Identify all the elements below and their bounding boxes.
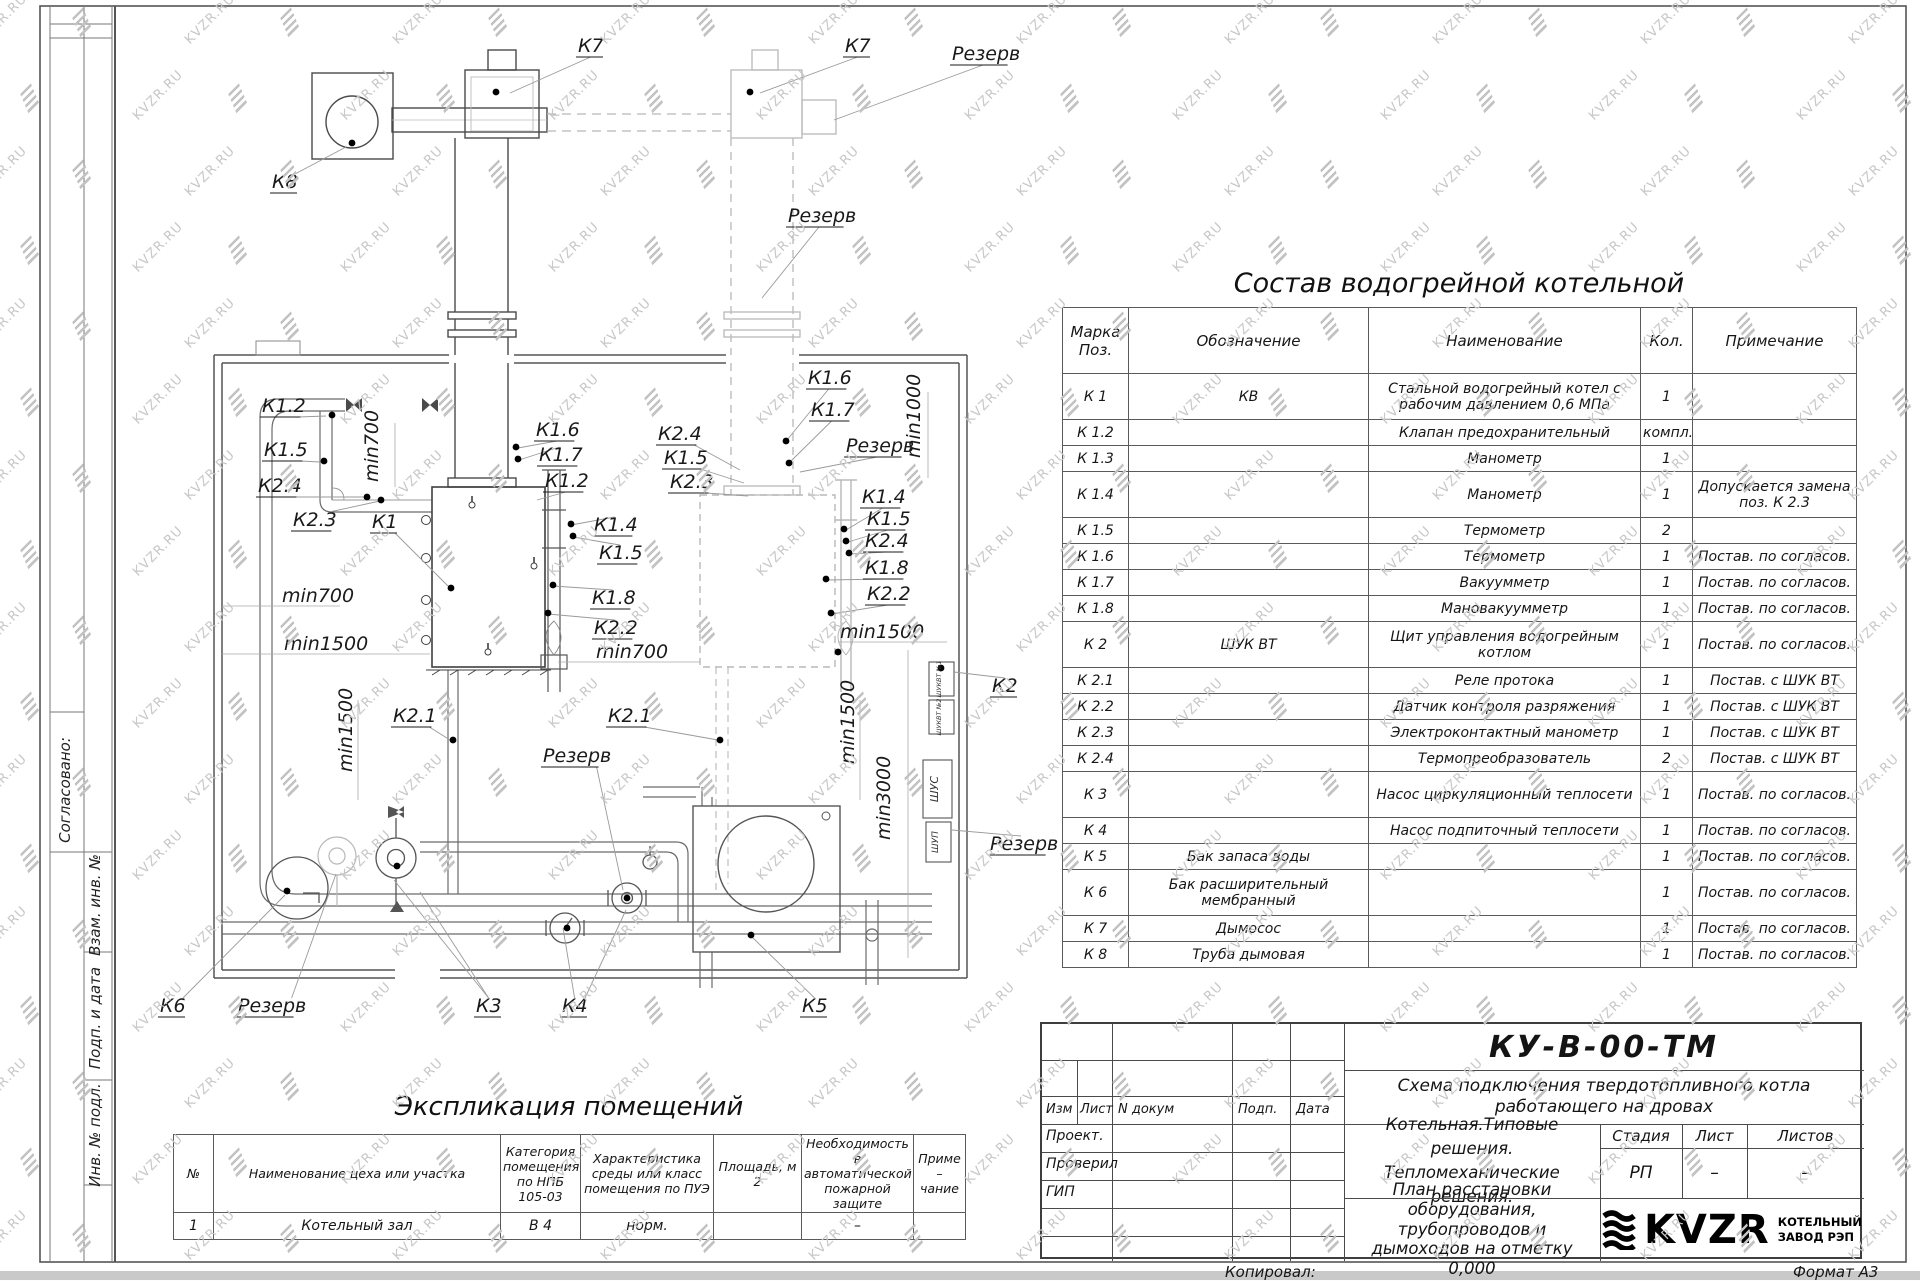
explication-table-section: Экспликация помещений №Наименование цеха…: [173, 1092, 965, 1240]
drawing-label: К2.1: [608, 705, 652, 727]
stamp-column-label: Подп. и дата: [86, 967, 104, 1069]
drawing-label: min3000: [873, 756, 895, 840]
c-note: Постав. по согласов.: [1693, 916, 1857, 942]
c-mark: К 3: [1063, 772, 1129, 818]
drawing-label: К1.5: [664, 447, 708, 469]
c-name: Насос циркуляционный теплосети: [1369, 772, 1641, 818]
drawing-label: К1.6: [808, 367, 852, 389]
table-row: К 3Насос циркуляционный теплосети1Постав…: [1063, 772, 1857, 818]
drawing-label: К6: [160, 995, 186, 1017]
c-qty: 1: [1641, 668, 1693, 694]
table-row: К 7Дымосос1Постав. по согласов.: [1063, 916, 1857, 942]
c-desig: [1129, 694, 1369, 720]
document-number: КУ-В-00-ТМ: [1344, 1024, 1864, 1070]
c-desig: Дымосос: [1129, 916, 1369, 942]
table-row: К 1КВСтальной водогрейный котел с рабочи…: [1063, 374, 1857, 420]
composition-table-title: Состав водогрейной котельной: [1062, 268, 1856, 299]
drawing-label: К2.2: [594, 617, 638, 639]
c-mark: К 4: [1063, 818, 1129, 844]
table-row: К 2ШУК ВТЩит управления водогрейным котл…: [1063, 622, 1857, 668]
c-mark: К 2.1: [1063, 668, 1129, 694]
c-mark: К 8: [1063, 942, 1129, 968]
c-note: Постав. по согласов.: [1693, 844, 1857, 870]
c-name: Манометр: [1369, 446, 1641, 472]
drawing-label: min700: [596, 641, 668, 663]
drawing-label: К1.6: [536, 419, 580, 441]
logo-caption: КОТЕЛЬНЫЙ ЗАВОД РЭП: [1778, 1215, 1862, 1244]
kvzr-logo-icon: [1602, 1210, 1636, 1250]
drawing-label: К1.5: [867, 508, 911, 530]
expl-cell: В 4: [501, 1213, 581, 1240]
drawing-label: К2.3: [293, 509, 337, 531]
company-logo: KVZR КОТЕЛЬНЫЙ ЗАВОД РЭП: [1600, 1198, 1864, 1261]
c-note: [1693, 374, 1857, 420]
composition-table-section: Состав водогрейной котельной Марка Поз. …: [1062, 268, 1856, 968]
c-note: Постав. по согласов.: [1693, 544, 1857, 570]
c-name: Электроконтактный манометр: [1369, 720, 1641, 746]
stamp-column-label: Согласовано:: [56, 737, 74, 843]
c-name: Термопреобразователь: [1369, 746, 1641, 772]
drawing-label: min1500: [284, 633, 368, 655]
expl-header-cell: Наименование цеха или участка: [214, 1135, 501, 1213]
expl-cell: 1: [174, 1213, 214, 1240]
table-row: К 2.4Термопреобразователь2Постав. с ШУК …: [1063, 746, 1857, 772]
expl-header-cell: Характеристика среды или класс помещения…: [581, 1135, 714, 1213]
c-name: Клапан предохранительный: [1369, 420, 1641, 446]
drawing-label: К1.2: [262, 395, 306, 417]
c-note: Постав. с ШУК ВТ: [1693, 668, 1857, 694]
drawing-label: К2.4: [865, 530, 909, 552]
c-desig: [1129, 544, 1369, 570]
drawing-label: К1.4: [862, 486, 906, 508]
c-name: Вакуумметр: [1369, 570, 1641, 596]
logo-word: KVZR: [1644, 1207, 1770, 1253]
c-qty: 1: [1641, 570, 1693, 596]
water-tank-k5: [693, 806, 840, 952]
drawing-label: Резерв: [952, 43, 1020, 65]
c-mark: К 6: [1063, 870, 1129, 916]
c-desig: [1129, 446, 1369, 472]
table-row: К 2.1Реле протока1Постав. с ШУК ВТ: [1063, 668, 1857, 694]
c-note: Постав. по согласов.: [1693, 818, 1857, 844]
expl-header-cell: Приме – чание: [914, 1135, 966, 1213]
drawing-sheet: К7К7РезервК8РезервК1.2К1.5К2.4К2.3К1min7…: [0, 0, 1920, 1280]
expl-cell: Котельный зал: [214, 1213, 501, 1240]
drawing-label: К2.3: [670, 471, 714, 493]
c-note: Постав. с ШУК ВТ: [1693, 746, 1857, 772]
c-name: [1369, 844, 1641, 870]
c-qty: 2: [1641, 518, 1693, 544]
c-name: Термометр: [1369, 544, 1641, 570]
table-row: К 1.6Термометр1Постав. по согласов.: [1063, 544, 1857, 570]
c-desig: Бак расширительный мембранный: [1129, 870, 1369, 916]
c-qty: 2: [1641, 746, 1693, 772]
c-name: Реле протока: [1369, 668, 1641, 694]
c-qty: 1: [1641, 446, 1693, 472]
c-qty: 1: [1641, 472, 1693, 518]
left-stamp-column: [50, 6, 112, 1262]
c-qty: 1: [1641, 870, 1693, 916]
reserve-boiler: [700, 480, 857, 692]
table-row: К 2.3Электроконтактный манометр1Постав. …: [1063, 720, 1857, 746]
c-mark: К 7: [1063, 916, 1129, 942]
role-checked: Проверил: [1046, 1156, 1118, 1172]
title-block: Изм Лист N докум Подп. Дата Проект. Пров…: [1040, 1022, 1862, 1259]
c-note: [1693, 446, 1857, 472]
stage-header: Стадия: [1600, 1124, 1682, 1148]
drawing-label: К1.4: [594, 514, 638, 536]
c-mark: К 2.2: [1063, 694, 1129, 720]
c-name: Датчик контроля разряжения: [1369, 694, 1641, 720]
c-qty: 1: [1641, 596, 1693, 622]
change-col-data: Дата: [1296, 1102, 1330, 1117]
cabinet-label: ШУКВТ №1: [935, 661, 943, 698]
c-desig: [1129, 596, 1369, 622]
drawing-label: min700: [361, 410, 383, 482]
chimney-k8: [312, 73, 547, 159]
sheets-header: Листов: [1747, 1124, 1864, 1148]
copied-label: Копировал:: [1225, 1263, 1316, 1281]
c-mark: К 1.6: [1063, 544, 1129, 570]
c-name: Мановакуумметр: [1369, 596, 1641, 622]
drawing-label: К2.1: [393, 705, 437, 727]
expl-header-cell: №: [174, 1135, 214, 1213]
c-mark: К 5: [1063, 844, 1129, 870]
expl-cell: –: [802, 1213, 914, 1240]
role-project: Проект.: [1046, 1128, 1104, 1144]
drawing-label: К1.5: [264, 439, 308, 461]
drawing-label: К2: [992, 675, 1018, 697]
drawing-label: К3: [476, 995, 502, 1017]
table-row: К 8Труба дымовая1Постав. по согласов.: [1063, 942, 1857, 968]
drawing-label: К1.8: [592, 587, 636, 609]
expl-header-cell: Площадь, м 2: [714, 1135, 802, 1213]
c-desig: [1129, 668, 1369, 694]
cabinet-label: ШУКВТ №2: [935, 699, 943, 736]
drawing-label: К4: [562, 995, 588, 1017]
cabinet-label: ШУП: [931, 831, 941, 853]
c-desig: КВ: [1129, 374, 1369, 420]
c-note: Постав. по согласов.: [1693, 570, 1857, 596]
c-mark: К 1.4: [1063, 472, 1129, 518]
stamp-column-label: Взам. инв. №: [86, 854, 104, 956]
drawing-label: К1.5: [599, 542, 643, 564]
c-desig: [1129, 472, 1369, 518]
c-name: Насос подпиточный теплосети: [1369, 818, 1641, 844]
smoke-exhauster-k7: [448, 50, 539, 487]
table-row: К 4Насос подпиточный теплосети1Постав. п…: [1063, 818, 1857, 844]
c-note: [1693, 420, 1857, 446]
c-qty: 1: [1641, 622, 1693, 668]
expl-header-cell: Категория помещения по НПБ 105-03: [501, 1135, 581, 1213]
drawing-label: К1.8: [865, 557, 909, 579]
table-row: К 1.5Термометр2: [1063, 518, 1857, 544]
expl-cell: [914, 1213, 966, 1240]
c-desig: [1129, 518, 1369, 544]
c-desig: [1129, 772, 1369, 818]
format-label: Формат А3: [1793, 1263, 1878, 1281]
c-qty: 1: [1641, 772, 1693, 818]
c-mark: К 1.3: [1063, 446, 1129, 472]
sheet-value: –: [1682, 1148, 1747, 1198]
drawing-label: Резерв: [238, 995, 306, 1017]
drawing-label: Резерв: [543, 745, 611, 767]
c-qty: 1: [1641, 844, 1693, 870]
expl-header-cell: Необходимость в автоматической пожарной …: [802, 1135, 914, 1213]
c-mark: К 1.2: [1063, 420, 1129, 446]
c-mark: К 1: [1063, 374, 1129, 420]
drawing-label: К1.2: [545, 470, 589, 492]
c-qty: компл.: [1641, 420, 1693, 446]
change-col-list: Лист: [1080, 1102, 1113, 1117]
drawing-label: min1000: [903, 374, 925, 458]
c-note: Постав. по согласов.: [1693, 596, 1857, 622]
c-desig: [1129, 818, 1369, 844]
c-mark: К 1.8: [1063, 596, 1129, 622]
c-desig: ШУК ВТ: [1129, 622, 1369, 668]
expl-cell: [714, 1213, 802, 1240]
valve-symbols: [346, 398, 438, 412]
c-desig: [1129, 746, 1369, 772]
c-mark: К 2.3: [1063, 720, 1129, 746]
c-desig: [1129, 420, 1369, 446]
c-qty: 1: [1641, 916, 1693, 942]
drawing-label: min1500: [840, 621, 924, 643]
c-mark: К 1.7: [1063, 570, 1129, 596]
table-row: К 1.3Манометр1: [1063, 446, 1857, 472]
sheets-value: –: [1747, 1148, 1864, 1198]
c-desig: Труба дымовая: [1129, 942, 1369, 968]
expl-cell: норм.: [581, 1213, 714, 1240]
drawing-label: Резерв: [788, 205, 856, 227]
stamp-column-label: Инв. № подл.: [86, 1083, 104, 1186]
drawing-label: К5: [802, 995, 828, 1017]
c-qty: 1: [1641, 694, 1693, 720]
drawing-label: К1: [372, 511, 398, 533]
c-name: Манометр: [1369, 472, 1641, 518]
table-row: К 1.2Клапан предохранительныйкомпл.: [1063, 420, 1857, 446]
change-col-ndoc: N докум: [1118, 1102, 1174, 1117]
c-name: Стальной водогрейный котел с рабочим дав…: [1369, 374, 1641, 420]
sheet-name: План расстановки оборудования, трубопров…: [1344, 1198, 1600, 1261]
table-row: 1Котельный залВ 4норм.–: [174, 1213, 966, 1240]
composition-table: Марка Поз. Обозначение Наименование Кол.…: [1062, 307, 1857, 968]
change-col-podp: Подп.: [1238, 1102, 1277, 1117]
composition-header-row: Марка Поз. Обозначение Наименование Кол.…: [1063, 308, 1857, 374]
c-note: Постав. с ШУК ВТ: [1693, 694, 1857, 720]
table-row: К 1.8Мановакуумметр1Постав. по согласов.: [1063, 596, 1857, 622]
drawing-label: К7: [845, 35, 871, 57]
boiler-k1: [422, 487, 552, 675]
drawing-label: К7: [578, 35, 604, 57]
c-note: Допускается замена поз. К 2.3: [1693, 472, 1857, 518]
explication-table: №Наименование цеха или участкаКатегория …: [173, 1134, 966, 1240]
sheet-header: Лист: [1682, 1124, 1747, 1148]
expansion-tank-k6: [266, 857, 328, 919]
c-name: Щит управления водогрейным котлом: [1369, 622, 1641, 668]
change-col-izm: Изм: [1046, 1102, 1072, 1117]
c-desig: [1129, 570, 1369, 596]
role-gip: ГИП: [1046, 1184, 1075, 1200]
col-note: Примечание: [1693, 308, 1857, 374]
c-desig: Бак запаса воды: [1129, 844, 1369, 870]
c-mark: К 1.5: [1063, 518, 1129, 544]
col-mark: Марка Поз.: [1063, 308, 1129, 374]
c-note: [1693, 518, 1857, 544]
c-note: Постав. по согласов.: [1693, 870, 1857, 916]
drawing-label: К2.4: [658, 423, 702, 445]
c-name: Термометр: [1369, 518, 1641, 544]
c-note: Постав. с ШУК ВТ: [1693, 720, 1857, 746]
c-qty: 1: [1641, 942, 1693, 968]
c-mark: К 2.4: [1063, 746, 1129, 772]
c-qty: 1: [1641, 374, 1693, 420]
c-name: [1369, 942, 1641, 968]
c-qty: 1: [1641, 818, 1693, 844]
drawing-label: К1.7: [539, 444, 583, 466]
c-note: Постав. по согласов.: [1693, 942, 1857, 968]
table-row: К 6Бак расширительный мембранный1Постав.…: [1063, 870, 1857, 916]
c-desig: [1129, 720, 1369, 746]
c-name: [1369, 870, 1641, 916]
c-qty: 1: [1641, 544, 1693, 570]
table-row: К 1.7Вакуумметр1Постав. по согласов.: [1063, 570, 1857, 596]
col-designation: Обозначение: [1129, 308, 1369, 374]
drawing-label: min1500: [335, 688, 357, 772]
col-name: Наименование: [1369, 308, 1641, 374]
table-row: К 1.4Манометр1Допускается замена поз. К …: [1063, 472, 1857, 518]
table-row: К 2.2Датчик контроля разряжения1Постав. …: [1063, 694, 1857, 720]
drawing-label: Резерв: [990, 833, 1058, 855]
drawing-label: К2.4: [258, 475, 302, 497]
explication-header-row: №Наименование цеха или участкаКатегория …: [174, 1135, 966, 1213]
drawing-label: min1500: [837, 680, 859, 764]
table-row: К 5Бак запаса воды1Постав. по согласов.: [1063, 844, 1857, 870]
c-note: Постав. по согласов.: [1693, 622, 1857, 668]
drawing-label: К8: [272, 171, 298, 193]
drawing-label: К1.7: [811, 399, 855, 421]
stage-value: РП: [1600, 1148, 1682, 1198]
explication-table-title: Экспликация помещений: [173, 1092, 965, 1122]
circulation-pump-k3: [376, 806, 416, 912]
c-note: Постав. по согласов.: [1693, 772, 1857, 818]
c-mark: К 2: [1063, 622, 1129, 668]
drawing-label: min700: [282, 585, 354, 607]
c-qty: 1: [1641, 720, 1693, 746]
drawing-label: К2.2: [867, 583, 911, 605]
cabinet-label: ШУС: [928, 776, 941, 802]
c-name: [1369, 916, 1641, 942]
col-qty: Кол.: [1641, 308, 1693, 374]
